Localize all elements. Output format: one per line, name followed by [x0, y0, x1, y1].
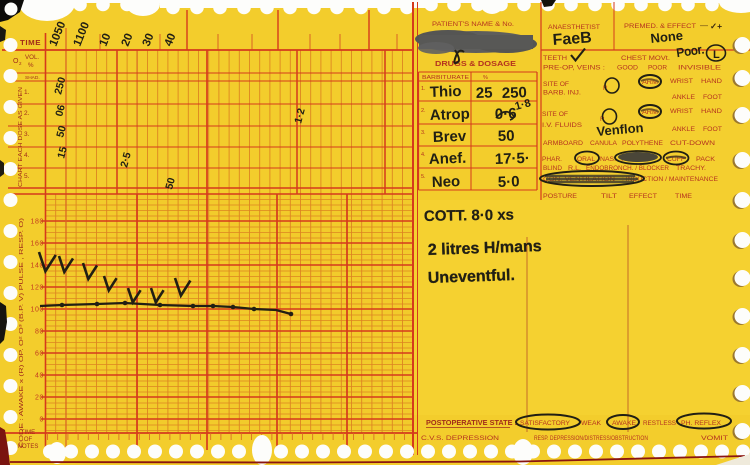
svg-text:Uneventful.: Uneventful.	[428, 267, 516, 287]
svg-text:BLIND: BLIND	[543, 165, 562, 172]
svg-text:RESTLESS: RESTLESS	[643, 420, 676, 427]
svg-text:Anef.: Anef.	[429, 150, 467, 168]
svg-text:25: 25	[476, 84, 493, 102]
svg-text:I.V. FLUIDS: I.V. FLUIDS	[542, 122, 582, 129]
svg-text:CANULA: CANULA	[590, 140, 618, 147]
svg-text:SATISFACTORY: SATISFACTORY	[520, 420, 571, 427]
svg-text:TILT: TILT	[601, 193, 617, 200]
svg-text:PATIENT'S NAME & No.: PATIENT'S NAME & No.	[432, 21, 514, 28]
svg-text:WRIST: WRIST	[670, 78, 693, 85]
svg-text:INVISIBLE: INVISIBLE	[678, 65, 721, 72]
svg-text:PRE-OP, VEINS :: PRE-OP, VEINS :	[543, 65, 605, 72]
svg-text:VOMIT: VOMIT	[701, 435, 728, 442]
svg-text:180: 180	[31, 219, 44, 226]
svg-text:ARMBOARD: ARMBOARD	[543, 140, 583, 147]
svg-text:PREMED. & EFFECT: PREMED. & EFFECT	[624, 23, 696, 30]
svg-text:120: 120	[31, 285, 44, 292]
svg-text:BARBITURATE: BARBITURATE	[422, 75, 470, 81]
svg-text:CHART EACH DOSE AS GIVEN: CHART EACH DOSE AS GIVEN	[18, 87, 24, 187]
svg-text:20: 20	[35, 395, 44, 402]
svg-text:FOOT: FOOT	[703, 94, 722, 101]
svg-text:CHEST MOVt.: CHEST MOVt.	[621, 55, 670, 62]
svg-text:2.: 2.	[24, 110, 30, 117]
svg-text:Brev: Brev	[433, 128, 468, 146]
svg-text:160: 160	[31, 241, 44, 248]
svg-text:3.: 3.	[421, 130, 426, 136]
svg-text:0·6: 0·6	[495, 105, 517, 123]
svg-text:ORAL: ORAL	[577, 156, 596, 163]
svg-text:WEAK: WEAK	[581, 420, 602, 427]
svg-text:1.: 1.	[421, 86, 426, 92]
svg-text:0: 0	[40, 417, 45, 424]
svg-text:BARB. INJ.: BARB. INJ.	[543, 90, 581, 97]
svg-text:80: 80	[35, 329, 44, 336]
svg-text:CODE : AWAKE x (R) OP. O² O³ (: CODE : AWAKE x (R) OP. O² O³ (B.P. V) PU…	[19, 218, 25, 448]
svg-text:EFFECT: EFFECT	[629, 193, 657, 200]
svg-text:CUT-DOWN: CUT-DOWN	[670, 140, 716, 147]
svg-text:POSTURE: POSTURE	[543, 193, 577, 200]
svg-text:COTT. 8·0 xs: COTT. 8·0 xs	[424, 206, 514, 225]
svg-text:DRUGS & DOSAGE: DRUGS & DOSAGE	[435, 59, 516, 68]
svg-text:SITE OF: SITE OF	[542, 111, 568, 118]
svg-text:FOOT: FOOT	[703, 126, 722, 133]
svg-text:POLYTHENE: POLYTHENE	[622, 140, 663, 147]
svg-text:2.: 2.	[421, 108, 426, 114]
svg-text:WRIST: WRIST	[670, 108, 693, 115]
svg-text:4.: 4.	[24, 152, 30, 159]
svg-text:PHAR.: PHAR.	[542, 156, 562, 163]
svg-text:—: —	[700, 21, 708, 30]
svg-text:4.: 4.	[421, 152, 426, 158]
svg-text:5.: 5.	[24, 173, 30, 180]
svg-text:Neo: Neo	[432, 173, 461, 191]
svg-text:OF: OF	[24, 437, 33, 443]
svg-text:SITE OF: SITE OF	[543, 81, 569, 88]
svg-text:17·5·: 17·5·	[495, 150, 531, 168]
svg-text:VOL.: VOL.	[25, 54, 39, 61]
svg-text:✓+: ✓+	[710, 21, 722, 31]
svg-text:100: 100	[31, 307, 44, 314]
svg-text:PACK: PACK	[696, 156, 716, 163]
svg-text:HAND: HAND	[701, 78, 723, 85]
svg-text:C.V.S. DEPRESSION: C.V.S. DEPRESSION	[421, 435, 500, 442]
svg-text:TIME: TIME	[21, 430, 35, 436]
svg-text:POSTOPERATIVE STATE :: POSTOPERATIVE STATE :	[426, 418, 517, 427]
svg-text:40: 40	[35, 373, 44, 380]
svg-text:5·0: 5·0	[498, 173, 520, 191]
svg-text:60: 60	[35, 351, 44, 358]
svg-text:RESP. DEPRESSION/DISTRESS/OBST: RESP. DEPRESSION/DISTRESS/OBSTRUCTION	[534, 435, 648, 442]
svg-text:Thio: Thio	[430, 83, 462, 101]
svg-text:POOR: POOR	[648, 65, 667, 72]
svg-text:1.: 1.	[24, 89, 30, 96]
svg-text:%: %	[28, 62, 34, 69]
svg-text:Atrop: Atrop	[430, 106, 471, 124]
svg-text:NAS.: NAS.	[600, 156, 616, 163]
svg-text:FaeB: FaeB	[552, 29, 592, 49]
svg-text:TEETH: TEETH	[543, 55, 568, 62]
svg-text:TRACHY.: TRACHY.	[676, 165, 706, 172]
svg-text:GOOD: GOOD	[617, 65, 638, 72]
svg-text:NOTES: NOTES	[18, 444, 39, 450]
svg-text:%: %	[483, 75, 488, 81]
svg-text:50: 50	[498, 127, 515, 145]
svg-text:TIME: TIME	[20, 38, 41, 47]
svg-text:ANKLE: ANKLE	[672, 126, 695, 133]
svg-text:ANKLE: ANKLE	[672, 94, 695, 101]
svg-text:L: L	[713, 49, 720, 61]
svg-text:TIME: TIME	[675, 193, 692, 200]
svg-text:AWAKE: AWAKE	[612, 420, 636, 427]
svg-text:3.: 3.	[24, 131, 30, 138]
svg-text:HAND: HAND	[701, 108, 723, 115]
svg-text:SHAD.: SHAD.	[25, 75, 40, 81]
svg-text:5.: 5.	[421, 174, 426, 180]
